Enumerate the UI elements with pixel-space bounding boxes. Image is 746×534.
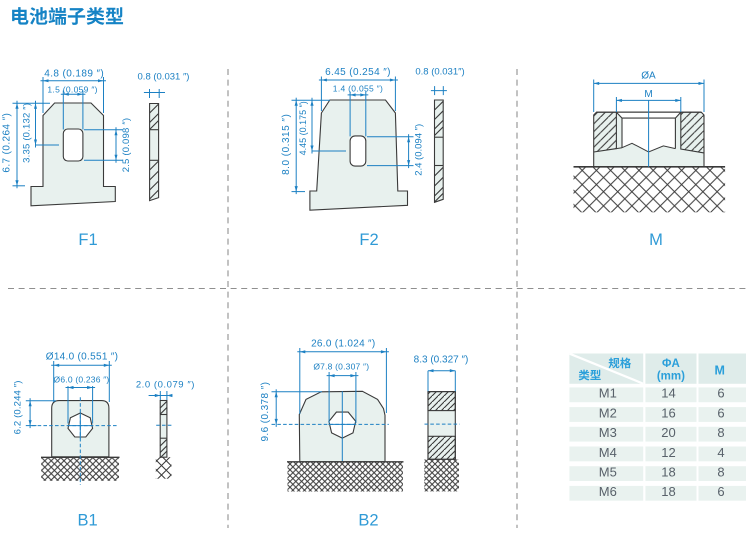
svg-text:6.2 (0.244 ″): 6.2 (0.244 ″) [13, 380, 24, 434]
svg-text:B1: B1 [78, 512, 98, 530]
svg-text:4.45 (0.175 ″): 4.45 (0.175 ″) [298, 101, 308, 155]
svg-text:18: 18 [661, 484, 675, 499]
svg-text:12: 12 [661, 445, 675, 460]
svg-text:M: M [649, 231, 663, 249]
svg-text:F2: F2 [359, 231, 378, 249]
svg-text:B2: B2 [358, 512, 378, 530]
svg-text:2.4 (0.094 ″): 2.4 (0.094 ″) [413, 124, 424, 176]
svg-text:8.0 (0.315 ″): 8.0 (0.315 ″) [281, 114, 292, 175]
svg-text:8: 8 [717, 465, 724, 480]
svg-text:6: 6 [717, 386, 724, 401]
svg-text:3.35 (0.132 ″): 3.35 (0.132 ″) [22, 103, 33, 163]
svg-text:6: 6 [717, 405, 724, 420]
svg-text:6.7 (0.264 ″): 6.7 (0.264 ″) [2, 113, 13, 173]
svg-text:ØA: ØA [641, 71, 656, 82]
svg-text:18: 18 [661, 465, 675, 480]
svg-text:9.6 (0.378 ″): 9.6 (0.378 ″) [260, 382, 271, 442]
svg-text:2.0 (0.079 ″): 2.0 (0.079 ″) [136, 380, 195, 391]
svg-text:M6: M6 [599, 484, 617, 499]
svg-text:1.4 (0.055 ″): 1.4 (0.055 ″) [333, 84, 383, 94]
svg-text:0.8 (0.031 ″): 0.8 (0.031 ″) [138, 72, 190, 83]
svg-text:26.0 (1.024 ″): 26.0 (1.024 ″) [311, 339, 375, 350]
svg-text:M5: M5 [599, 465, 617, 480]
svg-text:Ø14.0 (0.551 ″): Ø14.0 (0.551 ″) [46, 351, 119, 362]
svg-text:2.5 (0.098 ″): 2.5 (0.098 ″) [121, 118, 132, 173]
svg-text:1.5 (0.059 ″): 1.5 (0.059 ″) [47, 85, 97, 95]
svg-text:20: 20 [661, 425, 675, 440]
svg-text:6.45 (0.254 ″): 6.45 (0.254 ″) [325, 67, 391, 78]
svg-text:4.8 (0.189 ″): 4.8 (0.189 ″) [44, 69, 104, 80]
svg-text:4: 4 [717, 445, 724, 460]
svg-text:F1: F1 [78, 231, 97, 249]
svg-text:8.3 (0.327 ″): 8.3 (0.327 ″) [414, 355, 469, 366]
svg-text:0.8 (0.031″): 0.8 (0.031″) [415, 67, 464, 78]
svg-text:Ø7.8 (0.307 ″): Ø7.8 (0.307 ″) [313, 361, 369, 371]
svg-text:M: M [644, 89, 652, 100]
svg-text:(mm): (mm) [657, 371, 685, 383]
svg-text:6: 6 [717, 484, 724, 499]
svg-text:ΦA: ΦA [662, 358, 680, 370]
svg-text:M3: M3 [599, 425, 617, 440]
svg-text:8: 8 [717, 425, 724, 440]
svg-text:M2: M2 [599, 405, 617, 420]
svg-text:16: 16 [661, 405, 675, 420]
svg-text:M4: M4 [599, 445, 617, 460]
svg-text:M: M [714, 364, 724, 378]
svg-text:14: 14 [661, 386, 675, 401]
svg-text:M1: M1 [599, 386, 617, 401]
svg-text:Ø6.0 (0.236 ″): Ø6.0 (0.236 ″) [54, 374, 110, 384]
